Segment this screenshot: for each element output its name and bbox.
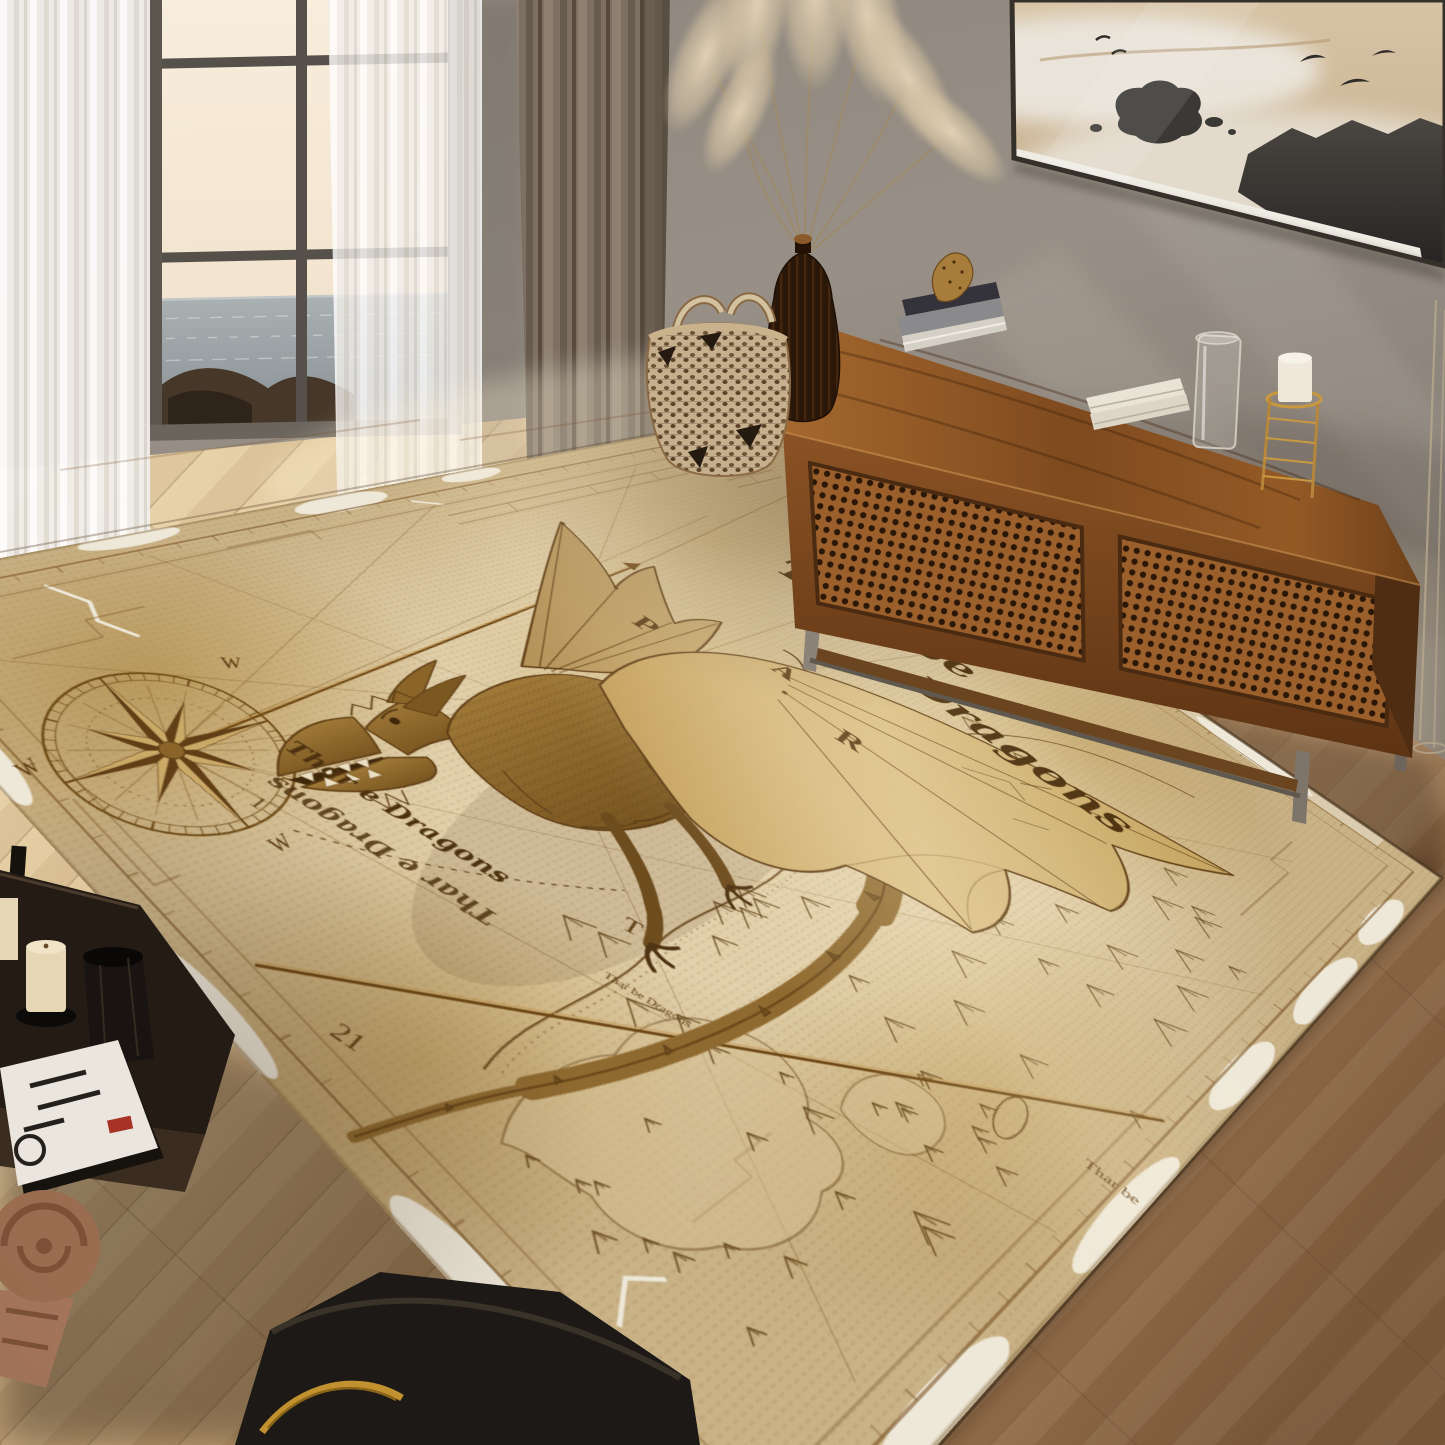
room-scene: W W W — [0, 0, 1445, 1445]
